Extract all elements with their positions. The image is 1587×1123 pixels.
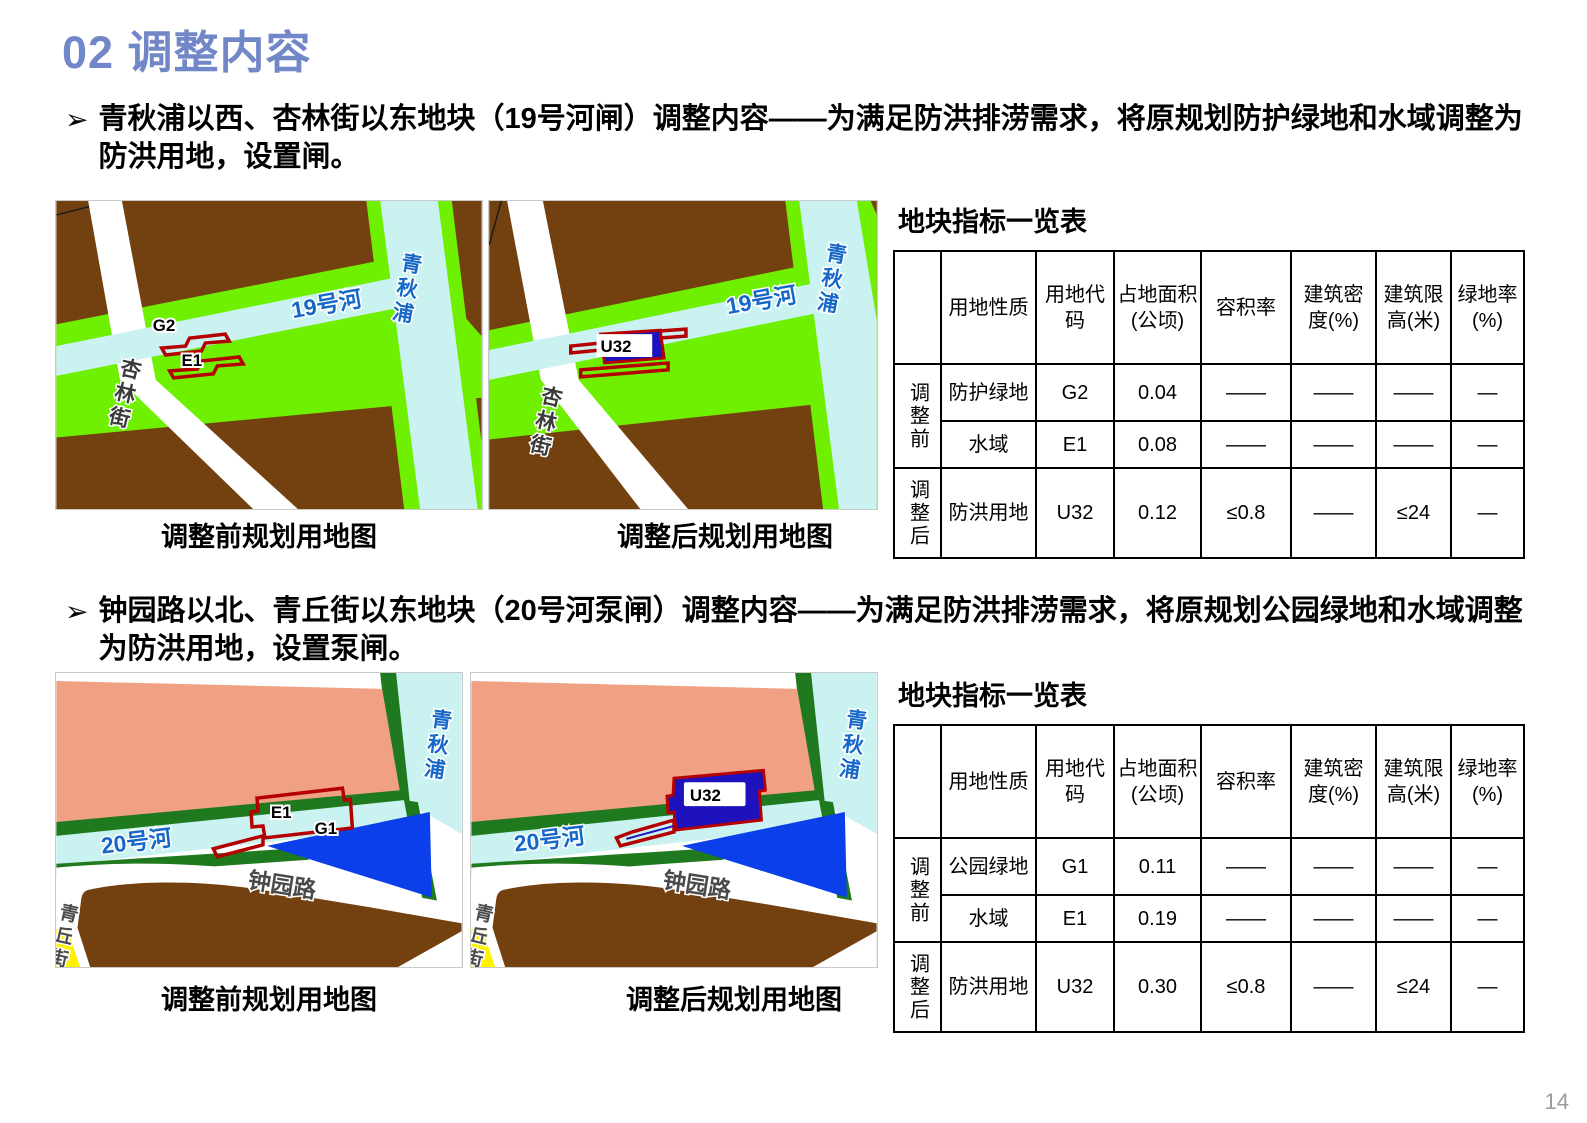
bullet-19: ➢ 青秋浦以西、杏林街以东地块（19号河闸）调整内容——为满足防洪排涝需求，将原… <box>65 100 1530 176</box>
cell: E1 <box>1036 895 1114 942</box>
cell: —— <box>1291 838 1376 895</box>
parcel-label-e1: E1 <box>271 803 292 822</box>
caption-20-before: 调整前规划用地图 <box>55 978 483 1017</box>
indicator-table-19: 用地性质 用地代码 占地面积(公顷) 容积率 建筑密度(%) 建筑限高(米) 绿… <box>893 250 1525 559</box>
col-header: 用地性质 <box>941 251 1036 364</box>
cell: 0.30 <box>1114 942 1201 1032</box>
col-header: 占地面积(公顷) <box>1114 725 1201 838</box>
col-header: 建筑密度(%) <box>1291 251 1376 364</box>
cell: —— <box>1291 895 1376 942</box>
cell: 0.19 <box>1114 895 1201 942</box>
cell: E1 <box>1036 421 1114 468</box>
caption-19-before: 调整前规划用地图 <box>55 515 483 554</box>
table-row: 调整前 防护绿地 G2 0.04 —— —— —— — <box>894 364 1524 421</box>
cell: ≤24 <box>1376 942 1451 1032</box>
bullet-19-text: 青秋浦以西、杏林街以东地块（19号河闸）调整内容——为满足防洪排涝需求，将原规划… <box>98 100 1530 176</box>
col-header: 用地性质 <box>941 725 1036 838</box>
col-header: 建筑限高(米) <box>1376 251 1451 364</box>
row-group-after: 调整后 <box>894 942 941 1032</box>
cell: —— <box>1291 468 1376 558</box>
cell: G2 <box>1036 364 1114 421</box>
cell: 防洪用地 <box>941 468 1036 558</box>
cell: ≤0.8 <box>1201 468 1291 558</box>
row-group-after: 调整后 <box>894 468 941 558</box>
cell: —— <box>1376 838 1451 895</box>
cell: — <box>1451 468 1524 558</box>
table-title-19: 地块指标一览表 <box>898 200 1087 239</box>
map-19-before: G2 E1 19号河 青秋浦 杏林街 <box>55 200 483 510</box>
page-title: 02 调整内容 <box>62 16 312 81</box>
col-header: 绿地率(%) <box>1451 725 1524 838</box>
cell: — <box>1451 421 1524 468</box>
cell: ≤24 <box>1376 468 1451 558</box>
cell: U32 <box>1036 468 1114 558</box>
map-19-before-svg: G2 E1 19号河 青秋浦 杏林街 <box>56 201 482 509</box>
page-number: 14 <box>1545 1089 1569 1115</box>
map-20-after-svg: U32 青秋浦 20号河 钟园路 青丘街 <box>471 673 877 967</box>
cell: —— <box>1201 421 1291 468</box>
cell: —— <box>1376 421 1451 468</box>
cell: —— <box>1201 838 1291 895</box>
map-19-after-svg: U32 19号河 青秋浦 杏林街 <box>489 201 877 509</box>
table-row: 调整前 公园绿地 G1 0.11 —— —— —— — <box>894 838 1524 895</box>
table-row: 调整后 防洪用地 U32 0.30 ≤0.8 —— ≤24 — <box>894 942 1524 1032</box>
cell: 0.11 <box>1114 838 1201 895</box>
col-header: 建筑密度(%) <box>1291 725 1376 838</box>
col-header: 绿地率(%) <box>1451 251 1524 364</box>
map-20-after: U32 青秋浦 20号河 钟园路 青丘街 <box>470 672 878 968</box>
cell: —— <box>1291 942 1376 1032</box>
indicator-table-20: 用地性质 用地代码 占地面积(公顷) 容积率 建筑密度(%) 建筑限高(米) 绿… <box>893 724 1525 1033</box>
col-header: 建筑限高(米) <box>1376 725 1451 838</box>
bullet-20-text: 钟园路以北、青丘街以东地块（20号河泵闸）调整内容——为满足防洪排涝需求，将原规… <box>98 592 1530 668</box>
map-20-before-svg: E1 G1 青秋浦 20号河 钟园路 青丘街 <box>56 673 462 967</box>
parcel-label-g2: G2 <box>153 316 176 335</box>
cell: — <box>1451 942 1524 1032</box>
caption-19-after: 调整后规划用地图 <box>530 515 920 554</box>
cell: 防洪用地 <box>941 942 1036 1032</box>
col-header: 用地代码 <box>1036 251 1114 364</box>
cell: 0.04 <box>1114 364 1201 421</box>
cell: —— <box>1291 364 1376 421</box>
cell: — <box>1451 838 1524 895</box>
cell: —— <box>1201 895 1291 942</box>
col-header: 用地代码 <box>1036 725 1114 838</box>
cell: —— <box>1376 895 1451 942</box>
table-corner-cell <box>894 725 941 838</box>
row-group-before: 调整前 <box>894 838 941 942</box>
cell: G1 <box>1036 838 1114 895</box>
slide: 02 调整内容 ➢ 青秋浦以西、杏林街以东地块（19号河闸）调整内容——为满足防… <box>0 0 1587 1123</box>
table-header-row: 用地性质 用地代码 占地面积(公顷) 容积率 建筑密度(%) 建筑限高(米) 绿… <box>894 725 1524 838</box>
table-title-20: 地块指标一览表 <box>898 674 1087 713</box>
table-corner-cell <box>894 251 941 364</box>
map-20-before: E1 G1 青秋浦 20号河 钟园路 青丘街 <box>55 672 463 968</box>
col-header: 容积率 <box>1201 725 1291 838</box>
cell: —— <box>1376 364 1451 421</box>
parcel-label-u32: U32 <box>601 337 632 356</box>
cell: 水域 <box>941 421 1036 468</box>
table-row: 调整后 防洪用地 U32 0.12 ≤0.8 —— ≤24 — <box>894 468 1524 558</box>
table-header-row: 用地性质 用地代码 占地面积(公顷) 容积率 建筑密度(%) 建筑限高(米) 绿… <box>894 251 1524 364</box>
map-19-after: U32 19号河 青秋浦 杏林街 <box>488 200 878 510</box>
cell: — <box>1451 364 1524 421</box>
cell: 防护绿地 <box>941 364 1036 421</box>
cell: 0.08 <box>1114 421 1201 468</box>
caption-20-after: 调整后规划用地图 <box>530 978 938 1017</box>
bullet-arrow-icon: ➢ <box>65 100 88 140</box>
parcel-label-g1: G1 <box>315 819 338 838</box>
col-header: 容积率 <box>1201 251 1291 364</box>
bullet-arrow-icon: ➢ <box>65 592 88 632</box>
cell: 0.12 <box>1114 468 1201 558</box>
cell: 公园绿地 <box>941 838 1036 895</box>
bullet-20: ➢ 钟园路以北、青丘街以东地块（20号河泵闸）调整内容——为满足防洪排涝需求，将… <box>65 592 1530 668</box>
parcel-label-e1: E1 <box>182 351 203 370</box>
cell: 水域 <box>941 895 1036 942</box>
row-group-before: 调整前 <box>894 364 941 468</box>
cell: ≤0.8 <box>1201 942 1291 1032</box>
cell: —— <box>1201 364 1291 421</box>
col-header: 占地面积(公顷) <box>1114 251 1201 364</box>
cell: — <box>1451 895 1524 942</box>
cell: U32 <box>1036 942 1114 1032</box>
cell: —— <box>1291 421 1376 468</box>
table-row: 水域 E1 0.19 —— —— —— — <box>894 895 1524 942</box>
table-row: 水域 E1 0.08 —— —— —— — <box>894 421 1524 468</box>
parcel-label-u32: U32 <box>690 786 721 805</box>
